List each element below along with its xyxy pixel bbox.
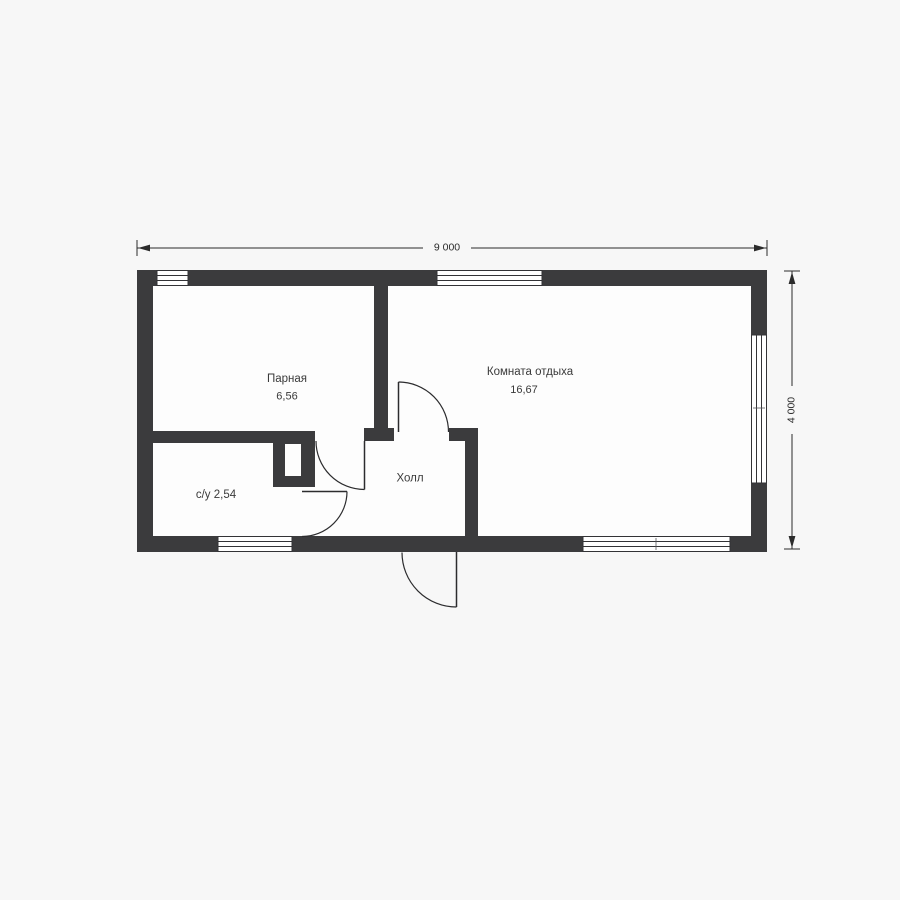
window-rest-room-top: [437, 271, 542, 286]
width-dimension-label: 9 000: [434, 242, 460, 254]
bathroom-label: с/у 2,54: [196, 489, 237, 501]
wall-hall-rest-top: [449, 428, 478, 441]
height-dimension-label: 4 000: [786, 397, 798, 423]
rest-room-area: 16,67: [510, 384, 538, 396]
rest-room-label: Комната отдыха: [487, 366, 574, 378]
wall-bathroom-top: [153, 431, 315, 443]
wall-steam-room-right: [374, 286, 388, 428]
window-rest-room-right: [752, 335, 767, 483]
window-steam-room: [157, 271, 188, 286]
window-rest-room-bottom: [583, 537, 730, 552]
wall-exterior-left: [137, 270, 153, 552]
wall-hall-rest-vertical: [465, 441, 478, 536]
window-bathroom: [218, 537, 292, 552]
hall-label: Холл: [396, 473, 423, 485]
steam-room-area: 6,56: [276, 391, 297, 403]
wall-jamb-steam-room: [364, 428, 394, 441]
vent-shaft-opening: [285, 444, 301, 476]
floor-plan-canvas: 9 000 4 000 Парная 6,56 Комната отдыха 1…: [0, 0, 900, 900]
floor-plan-drawing: 9 000 4 000 Парная 6,56 Комната отдыха 1…: [0, 0, 900, 900]
interior-floor: [153, 286, 751, 536]
steam-room-label: Парная: [267, 373, 307, 385]
